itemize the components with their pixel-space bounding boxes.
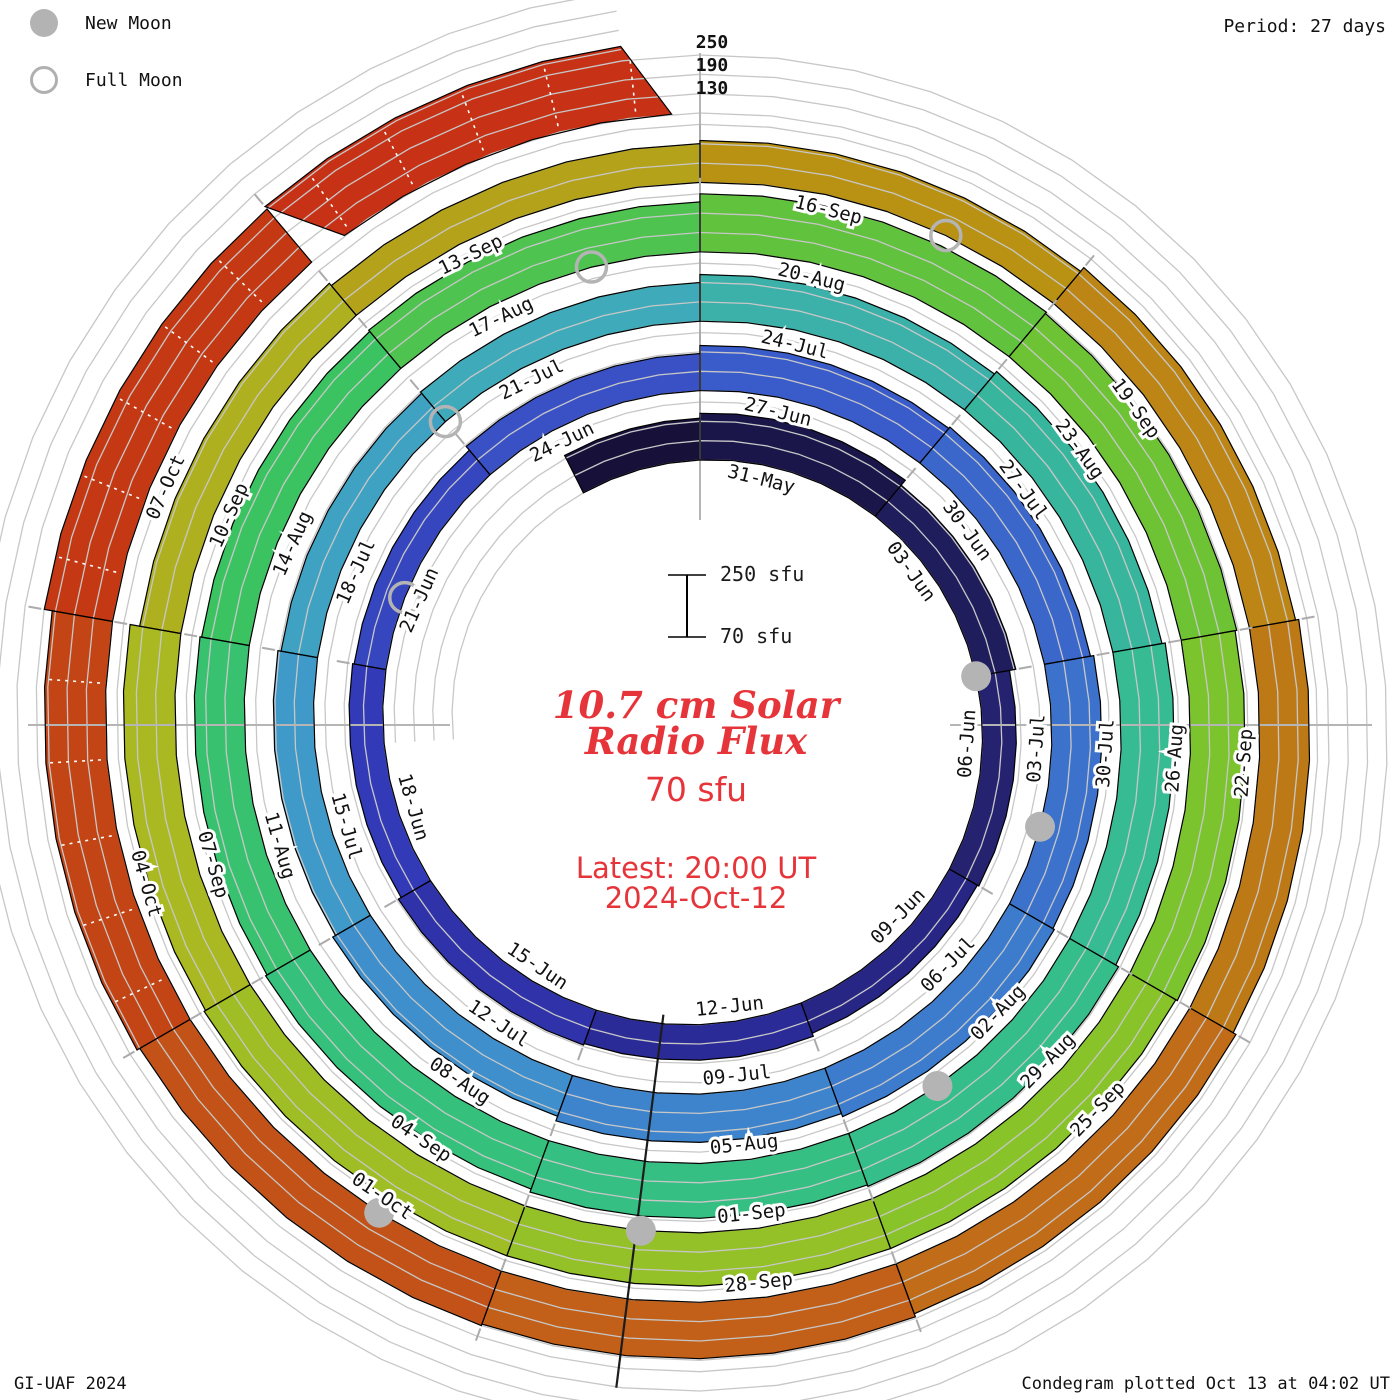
center-title-line: Latest: 20:00 UT [576,851,817,885]
segment-tick [892,1251,896,1263]
condegram-chart: 31-May03-Jun06-Jun09-Jun12-Jun15-Jun18-J… [0,0,1400,1400]
center-titles: 10.7 cm SolarRadio Flux70 sfuLatest: 20:… [553,683,842,915]
center-title-line: 70 sfu [645,770,747,809]
legend-row-new-moon: New Moon [30,8,183,38]
end-axis-label: 130 [696,78,729,99]
segment-tick [1239,1036,1250,1043]
segment-tick [1097,653,1110,655]
segment-tick [255,194,263,204]
segment-tick [578,1048,582,1060]
new-moon-marker [922,1071,952,1101]
segment-tick [190,1013,201,1020]
new-moon-marker [626,1216,656,1246]
segment-tick [262,648,275,650]
legend-row-full-moon: Full Moon [30,65,183,95]
plotted-timestamp-label: Condegram plotted Oct 13 at 04:02 UT [1022,1374,1390,1394]
legend-label-full-moon: Full Moon [85,70,183,91]
date-label: 26-Aug [1161,723,1188,793]
segment-tick [114,622,127,624]
date-label: 09-Jul [702,1061,773,1090]
segment-tick [814,1039,818,1051]
new-moon-icon [30,9,58,37]
segment-tick [319,939,330,946]
date-label: 06-Jun [954,709,981,779]
segment-tick [476,1328,480,1340]
segment-tick [1180,1002,1191,1009]
segment-tick [501,1259,505,1271]
credit-label: GI-UAF 2024 [14,1374,127,1394]
end-axis-labels: 250190130 [696,32,729,99]
segment-tick [524,1195,528,1207]
segment-tick [384,901,395,908]
moon-legend: New Moon Full Moon [30,8,183,122]
segment-tick [1019,667,1032,669]
segment-tick [1302,617,1315,619]
condegram-page: { "legend": { "items": [ {"id": "new-moo… [0,0,1400,1400]
date-label: 03-Jul [1023,713,1050,783]
segment-tick [29,607,42,609]
center-title-line: 2024-Oct-12 [605,881,788,915]
new-moon-marker [1025,812,1055,842]
scale-bar-label: 250 sfu [720,562,804,586]
segment-tick [456,434,464,444]
new-moon-marker [961,661,991,691]
flux-scale-bar: 250 sfu70 sfu [668,562,804,648]
date-label: 30-Jul [1092,718,1119,788]
segment-tick [319,271,327,281]
end-axis-label: 250 [696,32,729,53]
center-title-line: Radio Flux [584,719,808,763]
date-label: 22-Sep [1231,728,1258,798]
period-label: Period: 27 days [1223,16,1386,37]
scale-bar-label: 70 sfu [720,624,792,648]
end-axis-label: 190 [696,55,729,76]
legend-label-new-moon: New Moon [85,13,172,34]
flux-segment [556,1068,842,1142]
segment-tick [981,887,992,894]
segment-tick [184,634,197,636]
full-moon-icon [30,66,58,94]
segment-tick [410,380,418,390]
